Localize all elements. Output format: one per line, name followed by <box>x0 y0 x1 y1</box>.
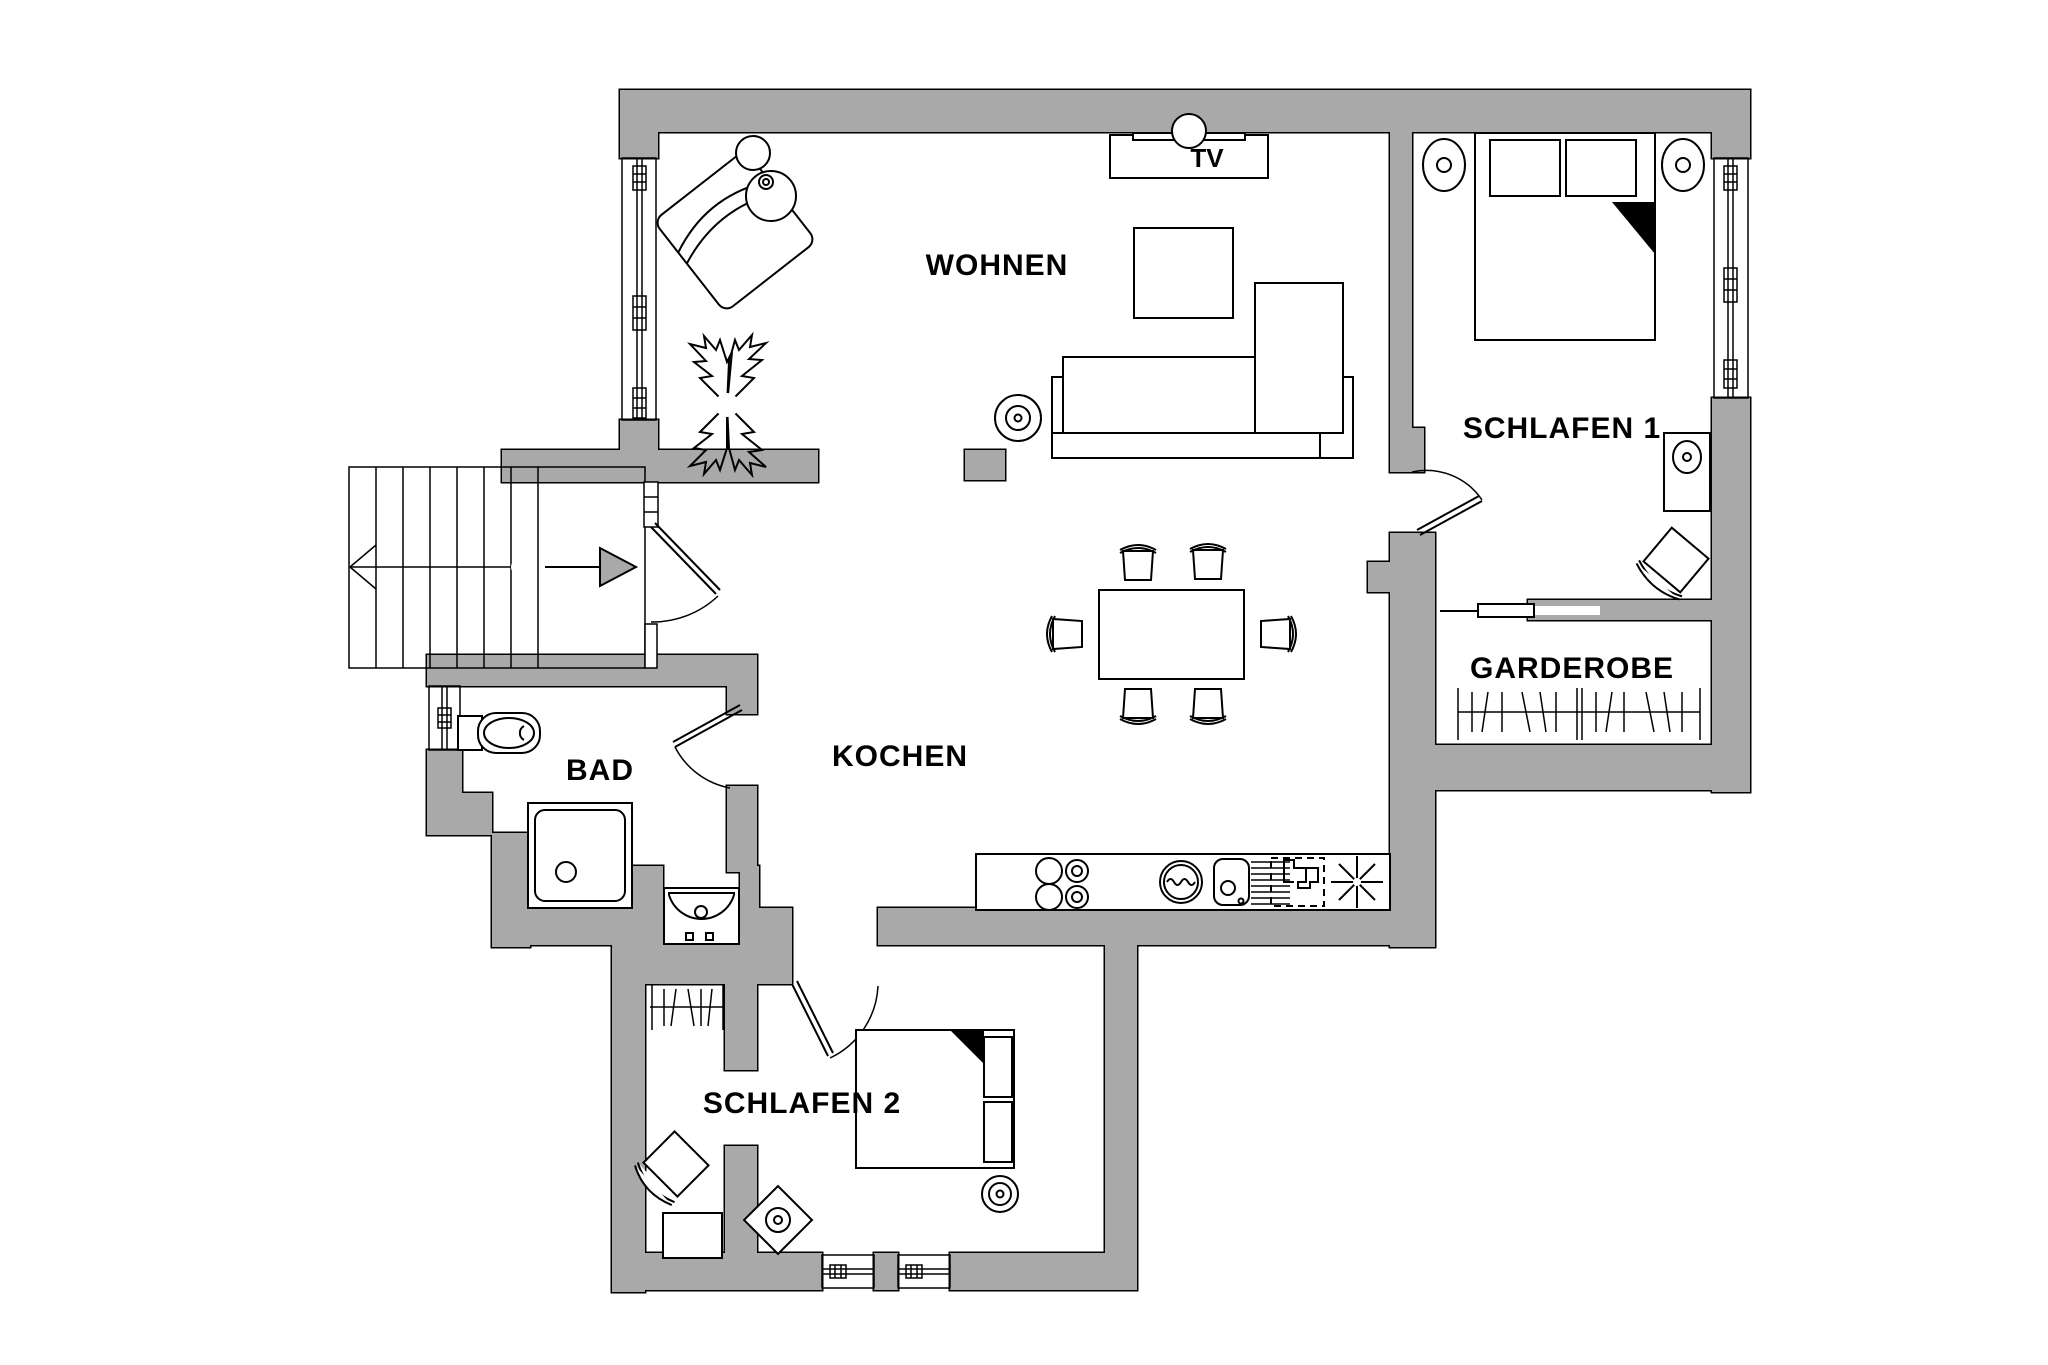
dining-chair <box>1120 545 1156 580</box>
schlafen1-bed <box>1475 133 1655 340</box>
bedside-lamp-icon <box>1423 139 1465 191</box>
schlafen1-chair <box>1633 525 1712 604</box>
schlafen1-door <box>1412 470 1482 535</box>
dining-chair <box>1261 616 1296 652</box>
closet-clothes-rail <box>650 985 725 1030</box>
schlafen2-side-table <box>663 1213 722 1258</box>
dining-chair <box>1190 544 1226 579</box>
room-label-wohnen: WOHNEN <box>926 249 1069 282</box>
coffee-table <box>1134 228 1233 318</box>
shower <box>528 803 632 908</box>
wc <box>458 713 540 753</box>
bedside-lamp-icon <box>1662 139 1704 191</box>
dining-chair <box>1120 689 1156 724</box>
schlafen2-round-lamp-icon <box>982 1176 1018 1212</box>
schlafen1-desk <box>1664 433 1710 511</box>
schlafen2-window-2 <box>898 1255 950 1288</box>
dining-chair <box>1190 689 1226 724</box>
schlafen2-window-1 <box>822 1255 874 1288</box>
room-label-kochen: KOCHEN <box>832 740 968 773</box>
wohnen-window <box>622 158 656 420</box>
floor-plan-page: TV <box>0 0 2048 1365</box>
room-label-schlafen1: SCHLAFEN 1 <box>1463 412 1661 445</box>
entrance-arrow-icon <box>545 548 636 586</box>
armchair <box>654 150 817 313</box>
speaker-icon <box>995 395 1041 441</box>
washing-machine-icon <box>1160 861 1202 903</box>
sink-icon <box>1214 859 1249 905</box>
dining-chair <box>1047 616 1082 652</box>
dining-table <box>1099 590 1244 679</box>
room-label-garderobe: GARDEROBE <box>1470 652 1674 685</box>
room-label-schlafen2: SCHLAFEN 2 <box>703 1087 901 1120</box>
floor-plan-drawing: TV <box>0 0 2048 1365</box>
washbasin <box>664 888 739 944</box>
schlafen1-window <box>1714 158 1748 398</box>
garderobe-clothes-rail <box>1458 688 1700 740</box>
room-label-bad: BAD <box>566 754 634 787</box>
tv-label: TV <box>1190 143 1224 173</box>
bad-door <box>673 705 742 788</box>
entrance-door <box>644 482 720 668</box>
bad-window <box>429 686 460 750</box>
